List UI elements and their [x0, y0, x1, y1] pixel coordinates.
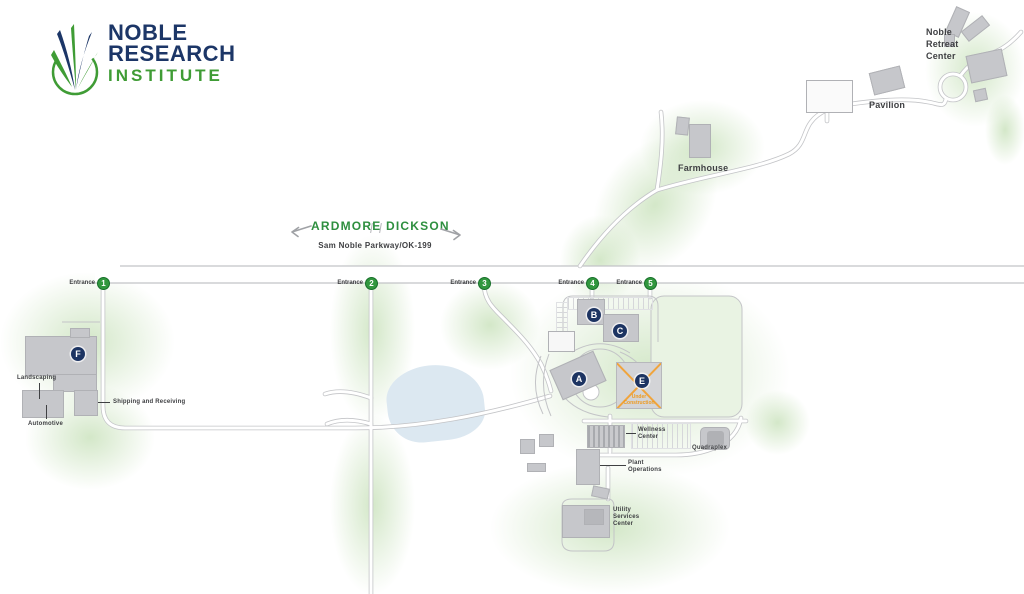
- building-marker-e: E: [635, 374, 649, 388]
- building-f: [70, 328, 90, 338]
- entrance-3-badge: 3: [478, 277, 491, 290]
- building-plant-operations: [576, 449, 600, 485]
- entrance-2-badge: 2: [365, 277, 378, 290]
- label-pavilion: Pavilion: [869, 99, 905, 111]
- building-wellness-center: [587, 425, 625, 448]
- under-construction-label: Under Construction: [617, 394, 661, 406]
- building-f: [25, 336, 97, 376]
- building-utility-services: [584, 509, 604, 525]
- building-farmhouse: [675, 116, 690, 135]
- building-shipping-receiving: [74, 390, 98, 416]
- leader-wellness: [626, 433, 636, 434]
- logo-text-research: RESEARCH: [108, 43, 235, 64]
- label-farmhouse: Farmhouse: [678, 162, 728, 174]
- building-marker-a: A: [572, 372, 586, 386]
- logo-grass-icon: [50, 22, 100, 100]
- leader-landscaping: [39, 383, 40, 399]
- building-e-under-construction: E Under Construction: [616, 362, 662, 409]
- west-arrow-icon: [288, 222, 312, 238]
- logo-text-noble: NOBLE: [108, 22, 235, 43]
- building-small: [527, 463, 546, 472]
- entrance-1-label: Entrance: [55, 280, 95, 286]
- label-shipping-receiving: Shipping and Receiving: [113, 399, 185, 406]
- building-white: [548, 331, 575, 352]
- label-quadraplex: Quadraplex: [692, 445, 727, 452]
- building-small: [520, 439, 535, 454]
- label-utility-services-center: Utility Services Center: [613, 507, 639, 528]
- east-arrow-icon: [440, 225, 464, 241]
- building-small: [539, 434, 554, 447]
- building-marker-b: B: [587, 308, 601, 322]
- leader-shipping: [98, 402, 110, 403]
- building-marker-c: C: [613, 324, 627, 338]
- entrance-4-badge: 4: [586, 277, 599, 290]
- building-landscaping-automotive: [22, 390, 64, 418]
- campus-map: E Under Construction A B C F Entrance 1 …: [0, 0, 1024, 594]
- building-farmhouse: [689, 124, 711, 158]
- building-marker-f: F: [71, 347, 85, 361]
- entrance-5-badge: 5: [644, 277, 657, 290]
- entrance-5-label: Entrance: [602, 280, 642, 286]
- label-landscaping: Landscaping: [17, 375, 56, 382]
- building-pavilion: [806, 80, 853, 113]
- entrance-2-label: Entrance: [323, 280, 363, 286]
- highway-label: Sam Noble Parkway/OK-199: [290, 241, 460, 250]
- entrance-1-badge: 1: [97, 277, 110, 290]
- label-plant-operations: Plant Operations: [628, 460, 662, 474]
- label-noble-retreat-center: Noble Retreat Center: [926, 26, 958, 62]
- logo: NOBLE RESEARCH INSTITUTE: [50, 22, 235, 100]
- logo-text-institute: INSTITUTE: [108, 66, 235, 86]
- entrance-3-label: Entrance: [436, 280, 476, 286]
- leader-automotive: [46, 405, 47, 419]
- entrance-4-label: Entrance: [544, 280, 584, 286]
- label-wellness-center: Wellness Center: [638, 427, 666, 441]
- leader-plant-operations: [600, 465, 626, 466]
- label-automotive: Automotive: [28, 421, 63, 428]
- building-quadraplex: [707, 431, 724, 446]
